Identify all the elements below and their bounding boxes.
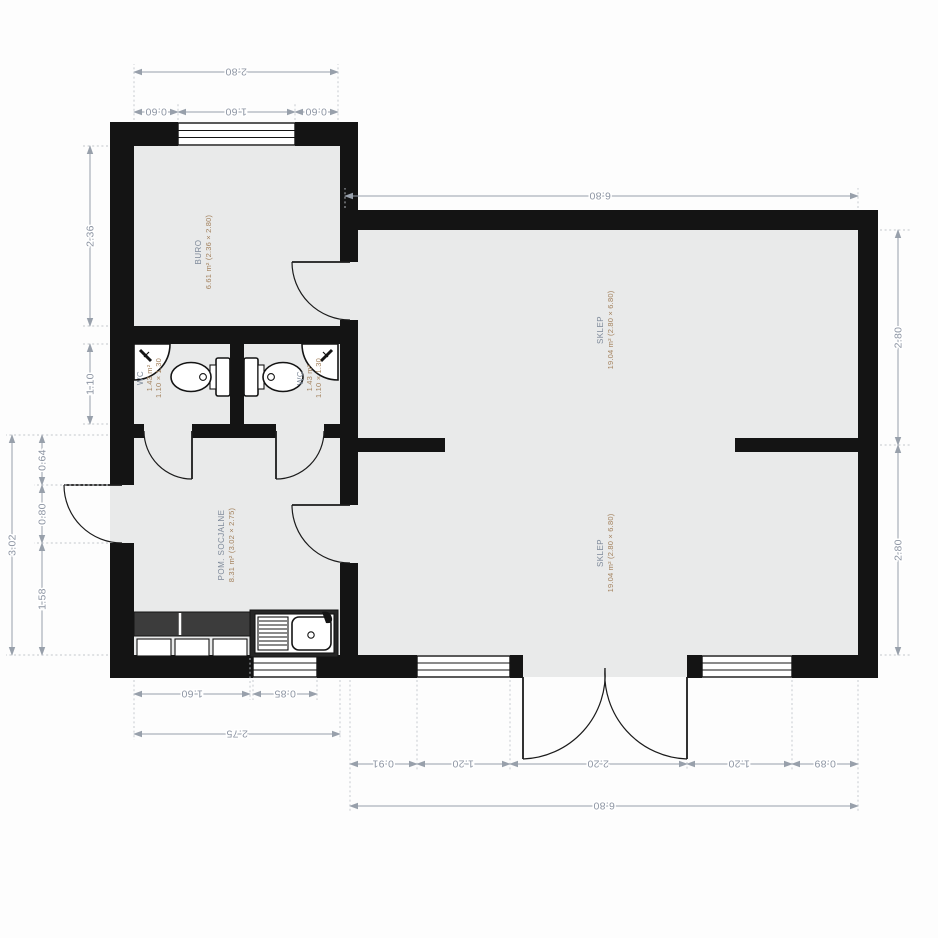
svg-text:WC: WC bbox=[296, 371, 305, 385]
room-label-pom-socjalne: POM. SOCJALNE 8.31 m² (3.02 × 2.75) bbox=[217, 507, 236, 582]
dim-buro-win-right: 0.60 bbox=[305, 106, 327, 118]
dim-window-left-width: 0.85 bbox=[274, 688, 296, 700]
dim-sklep-right-lower: 2.80 bbox=[893, 539, 905, 561]
dim-sklep-bottom-5: 0.89 bbox=[814, 758, 836, 770]
dim-pom-width-total: 2.75 bbox=[226, 728, 248, 740]
svg-text:1.43 m²: 1.43 m² bbox=[305, 364, 314, 391]
window-sklep-bottom-right bbox=[702, 656, 792, 677]
dim-sklep-top-total: 6.80 bbox=[589, 190, 611, 202]
window-pom-bottom bbox=[253, 656, 317, 677]
floor-plan-canvas: 2.80 0.60 1.60 0.60 6.80 2.80 2.80 2.36 … bbox=[0, 0, 938, 938]
svg-text:8.31 m² (3.02 × 2.75): 8.31 m² (3.02 × 2.75) bbox=[227, 507, 236, 582]
window-sklep-bottom-left bbox=[417, 656, 510, 677]
svg-text:1.10 × 1.30: 1.10 × 1.30 bbox=[314, 358, 323, 398]
dim-buro-width-total: 2.80 bbox=[225, 66, 247, 78]
dim-pom-seg-top: 0.64 bbox=[37, 449, 49, 471]
dim-buro-height: 2.36 bbox=[85, 225, 97, 247]
dim-sklep-right-upper: 2.80 bbox=[893, 327, 905, 349]
wall-bottom-1 bbox=[110, 655, 253, 678]
wall-mid-vertical-3 bbox=[340, 563, 358, 655]
svg-text:BURO: BURO bbox=[194, 240, 203, 265]
wall-bottom-pier-right bbox=[687, 655, 702, 678]
door-main-double bbox=[523, 668, 687, 759]
svg-text:6.61 m² (2.36 × 2.80): 6.61 m² (2.36 × 2.80) bbox=[204, 214, 213, 289]
dim-buro-win-left: 0.60 bbox=[145, 106, 167, 118]
wall-wc-pom-3 bbox=[324, 424, 358, 438]
wall-sklep-top bbox=[340, 210, 878, 230]
dim-sklep-bottom-total: 6.80 bbox=[593, 800, 615, 812]
dim-entry-door: 0.80 bbox=[37, 503, 49, 525]
svg-text:WC: WC bbox=[136, 371, 145, 385]
wall-sklep-stub-right bbox=[735, 438, 858, 452]
kitchen-sink bbox=[250, 610, 338, 657]
svg-text:1.43 m²: 1.43 m² bbox=[145, 364, 154, 391]
svg-text:19.04 m² (2.80 × 6.80): 19.04 m² (2.80 × 6.80) bbox=[606, 513, 615, 592]
kitchen-counter bbox=[134, 612, 250, 656]
wall-wc-pom-2 bbox=[192, 424, 276, 438]
dim-sklep-bottom-4: 1.20 bbox=[728, 758, 750, 770]
wall-mid-vertical-1 bbox=[340, 122, 358, 262]
floor-doorway-entry bbox=[110, 485, 134, 543]
wall-right bbox=[858, 210, 878, 678]
wall-sklep-stub-left bbox=[340, 438, 445, 452]
wall-mid-vertical-2 bbox=[340, 320, 358, 505]
dim-pom-height-total: 3.02 bbox=[7, 534, 19, 556]
wall-bottom-pier-left bbox=[510, 655, 523, 678]
dim-counter-width: 1.60 bbox=[181, 688, 203, 700]
dim-pom-seg-bottom: 1.58 bbox=[37, 588, 49, 610]
svg-text:SKLEP: SKLEP bbox=[596, 539, 605, 567]
dim-buro-win: 1.60 bbox=[225, 106, 247, 118]
svg-text:1.10 × 1.30: 1.10 × 1.30 bbox=[154, 358, 163, 398]
svg-text:SKLEP: SKLEP bbox=[596, 316, 605, 344]
svg-text:19.04 m² (2.80 × 6.80): 19.04 m² (2.80 × 6.80) bbox=[606, 290, 615, 369]
wall-wc-pom-1 bbox=[110, 424, 144, 438]
floor-doorway-buro bbox=[340, 262, 358, 320]
dim-sklep-bottom-3: 2.20 bbox=[587, 758, 609, 770]
window-buro-top bbox=[178, 123, 295, 145]
floor-plan-drawing: 2.80 0.60 1.60 0.60 6.80 2.80 2.80 2.36 … bbox=[0, 0, 938, 938]
wall-wc-divider bbox=[230, 344, 244, 424]
floor-doorway-pom bbox=[340, 505, 358, 563]
wall-buro-wc bbox=[110, 326, 358, 344]
svg-text:POM. SOCJALNE: POM. SOCJALNE bbox=[217, 510, 226, 581]
wall-bottom-2 bbox=[317, 655, 417, 678]
dim-wc-height: 1.10 bbox=[85, 373, 97, 395]
dim-sklep-bottom-1: 0.91 bbox=[372, 758, 394, 770]
dim-sklep-bottom-2: 1.20 bbox=[452, 758, 474, 770]
